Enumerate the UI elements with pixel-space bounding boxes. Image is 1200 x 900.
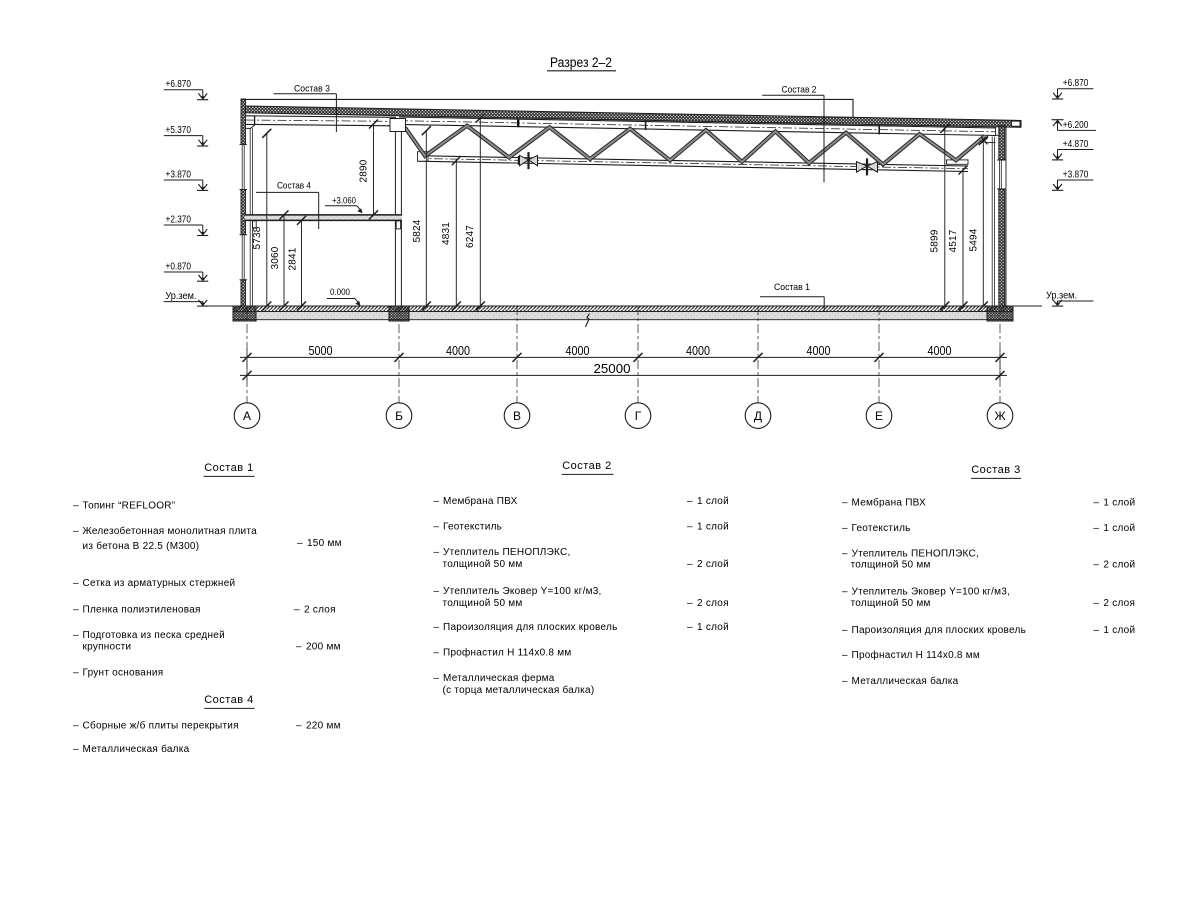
svg-text:–: – (73, 604, 79, 615)
svg-text:Железобетонная монолитная пли: Железобетонная монолитная плита (83, 525, 258, 537)
svg-text:Профнастил Н 114х0.8 мм: Профнастил Н 114х0.8 мм (852, 649, 981, 661)
svg-text:–: – (842, 523, 848, 534)
svg-text:–: – (842, 650, 848, 661)
svg-text:Состав 4: Состав 4 (277, 180, 311, 191)
svg-text:Состав 1: Состав 1 (774, 282, 810, 293)
svg-text:Грунт основания: Грунт основания (83, 668, 164, 679)
svg-text:–: – (434, 586, 440, 597)
svg-text:4000: 4000 (807, 343, 831, 358)
svg-text:–: – (434, 522, 440, 533)
svg-text:4000: 4000 (686, 343, 710, 358)
svg-text:+6.870: +6.870 (166, 79, 192, 90)
svg-text:–: – (434, 547, 440, 558)
svg-text:–: – (687, 522, 693, 533)
svg-text:4831: 4831 (441, 222, 452, 245)
svg-text:2 слоя: 2 слоя (304, 604, 336, 615)
svg-text:–: – (73, 526, 79, 537)
svg-text:–: – (687, 559, 693, 570)
svg-text:толщиной 50 мм: толщиной 50 мм (443, 559, 523, 570)
svg-text:–: – (434, 496, 440, 507)
svg-text:1 слой: 1 слой (697, 522, 729, 533)
svg-text:–: – (842, 548, 848, 559)
svg-text:Состав 3: Состав 3 (971, 464, 1021, 476)
svg-text:Пароизоляция для плоских крове: Пароизоляция для плоских кровель (443, 622, 618, 633)
svg-text:200 мм: 200 мм (306, 642, 341, 653)
svg-text:–: – (296, 720, 302, 731)
svg-text:Геотекстиль: Геотекстиль (852, 523, 911, 534)
svg-text:4000: 4000 (446, 343, 470, 358)
svg-text:–: – (1093, 598, 1099, 609)
svg-text:Сетка из арматурных стержней: Сетка из арматурных стержней (83, 578, 236, 589)
svg-text:4000: 4000 (566, 343, 590, 358)
svg-text:+3.870: +3.870 (1063, 169, 1089, 180)
svg-text:4000: 4000 (928, 343, 952, 358)
svg-text:Б: Б (395, 409, 403, 423)
svg-text:+6.200: +6.200 (1063, 120, 1089, 131)
svg-text:Утеплитель ПЕНОПЛЭКС,: Утеплитель ПЕНОПЛЭКС, (443, 547, 571, 558)
svg-text:–: – (73, 501, 79, 512)
svg-text:–: – (842, 625, 848, 636)
svg-text:1 слой: 1 слой (697, 496, 729, 507)
svg-text:–: – (687, 496, 693, 507)
svg-text:2890: 2890 (358, 159, 369, 182)
svg-text:толщиной 50 мм: толщиной 50 мм (443, 598, 523, 609)
svg-text:5000: 5000 (309, 343, 333, 358)
svg-text:–: – (1093, 497, 1099, 508)
svg-text:Состав 3: Состав 3 (294, 83, 330, 94)
svg-text:–: – (842, 587, 848, 598)
svg-text:1 слой: 1 слой (697, 622, 729, 633)
svg-text:1 слой: 1 слой (1103, 497, 1135, 508)
svg-text:толщиной 50 мм: толщиной 50 мм (851, 598, 931, 609)
svg-text:Топинг “REFLOOR”: Топинг “REFLOOR” (83, 501, 176, 512)
svg-text:Профнастил Н 114х0.8 мм: Профнастил Н 114х0.8 мм (443, 647, 572, 659)
svg-text:Металлическая балка: Металлическая балка (852, 675, 959, 687)
svg-text:2 слой: 2 слой (697, 559, 729, 570)
svg-text:1 слой: 1 слой (1103, 523, 1135, 534)
svg-text:Е: Е (875, 409, 883, 423)
svg-text:Утеплитель ПЕНОПЛЭКС,: Утеплитель ПЕНОПЛЭКС, (852, 548, 980, 559)
svg-text:Состав 1: Состав 1 (204, 462, 254, 474)
svg-text:Металлическая ферма: Металлическая ферма (443, 672, 555, 684)
svg-text:5899: 5899 (930, 229, 941, 252)
svg-text:В: В (513, 409, 521, 423)
svg-text:+6.870: +6.870 (1063, 78, 1089, 89)
svg-text:Утеплитель Эковер Y=100 кг/м3,: Утеплитель Эковер Y=100 кг/м3, (852, 587, 1011, 598)
svg-text:–: – (73, 744, 79, 755)
svg-text:–: – (1093, 523, 1099, 534)
svg-text:Ур.зем.: Ур.зем. (165, 291, 196, 302)
svg-text:(с торца металлическая балка): (с торца металлическая балка) (443, 684, 595, 696)
svg-text:из бетона В 22.5 (М300): из бетона В 22.5 (М300) (83, 540, 200, 552)
svg-text:5494: 5494 (969, 228, 980, 251)
svg-text:–: – (73, 668, 79, 679)
svg-text:2 слоя: 2 слоя (697, 598, 729, 609)
svg-text:+0.870: +0.870 (166, 261, 192, 272)
svg-text:Ур.зем.: Ур.зем. (1046, 290, 1077, 301)
svg-text:–: – (842, 497, 848, 508)
svg-text:3060: 3060 (270, 246, 281, 269)
svg-text:Состав 2: Состав 2 (782, 84, 817, 95)
svg-text:–: – (1093, 625, 1099, 636)
svg-text:–: – (434, 648, 440, 659)
svg-text:+5.370: +5.370 (166, 125, 192, 136)
svg-text:–: – (296, 642, 302, 653)
svg-text:150 мм: 150 мм (307, 538, 342, 549)
svg-text:–: – (842, 676, 848, 687)
svg-text:25000: 25000 (594, 361, 631, 376)
svg-text:1 слой: 1 слой (1103, 625, 1135, 636)
svg-text:6247: 6247 (465, 225, 476, 248)
svg-text:Пароизоляция для плоских крове: Пароизоляция для плоских кровель (852, 625, 1027, 636)
svg-text:2 слоя: 2 слоя (1103, 598, 1135, 609)
svg-text:Состав 4: Состав 4 (204, 694, 254, 706)
svg-text:Металлическая балка: Металлическая балка (83, 743, 190, 755)
svg-text:Разрез 2–2: Разрез 2–2 (550, 55, 612, 70)
svg-text:+3.870: +3.870 (166, 169, 192, 180)
svg-text:толщиной 50 мм: толщиной 50 мм (851, 560, 931, 571)
svg-text:+4.870: +4.870 (1063, 139, 1089, 150)
svg-text:А: А (243, 409, 251, 423)
svg-text:–: – (73, 630, 79, 641)
svg-text:Д: Д (754, 409, 762, 423)
svg-text:Мембрана ПВХ: Мембрана ПВХ (443, 495, 518, 507)
svg-text:4517: 4517 (948, 229, 959, 252)
svg-text:5738: 5738 (252, 226, 263, 249)
svg-text:крупности: крупности (83, 642, 132, 653)
svg-text:Подготовка из песка средней: Подготовка из песка средней (83, 630, 225, 641)
svg-text:–: – (434, 673, 440, 684)
svg-text:Мембрана ПВХ: Мембрана ПВХ (852, 496, 927, 508)
svg-text:Утеплитель Эковер Y=100 кг/м3,: Утеплитель Эковер Y=100 кг/м3, (443, 586, 602, 597)
svg-text:5824: 5824 (412, 219, 423, 242)
svg-text:0.000: 0.000 (330, 287, 350, 298)
svg-text:+3.060: +3.060 (332, 195, 356, 206)
svg-text:Пленка полиэтиленовая: Пленка полиэтиленовая (83, 604, 201, 615)
svg-text:Ж: Ж (994, 409, 1005, 423)
svg-text:Геотекстиль: Геотекстиль (443, 522, 502, 533)
svg-text:–: – (73, 720, 79, 731)
svg-text:2 слой: 2 слой (1103, 560, 1135, 571)
svg-text:2841: 2841 (287, 247, 298, 270)
svg-text:–: – (687, 622, 693, 633)
svg-text:–: – (687, 598, 693, 609)
svg-text:–: – (73, 578, 79, 589)
svg-text:220 мм: 220 мм (306, 720, 341, 731)
svg-text:–: – (1093, 560, 1099, 571)
svg-text:Состав 2: Состав 2 (562, 460, 612, 472)
svg-text:–: – (294, 604, 300, 615)
svg-text:Сборные ж/б плиты перекрытия: Сборные ж/б плиты перекрытия (83, 719, 239, 731)
svg-text:–: – (434, 622, 440, 633)
svg-text:+2.370: +2.370 (166, 214, 192, 225)
svg-text:–: – (297, 538, 303, 549)
svg-text:Г: Г (635, 409, 642, 423)
